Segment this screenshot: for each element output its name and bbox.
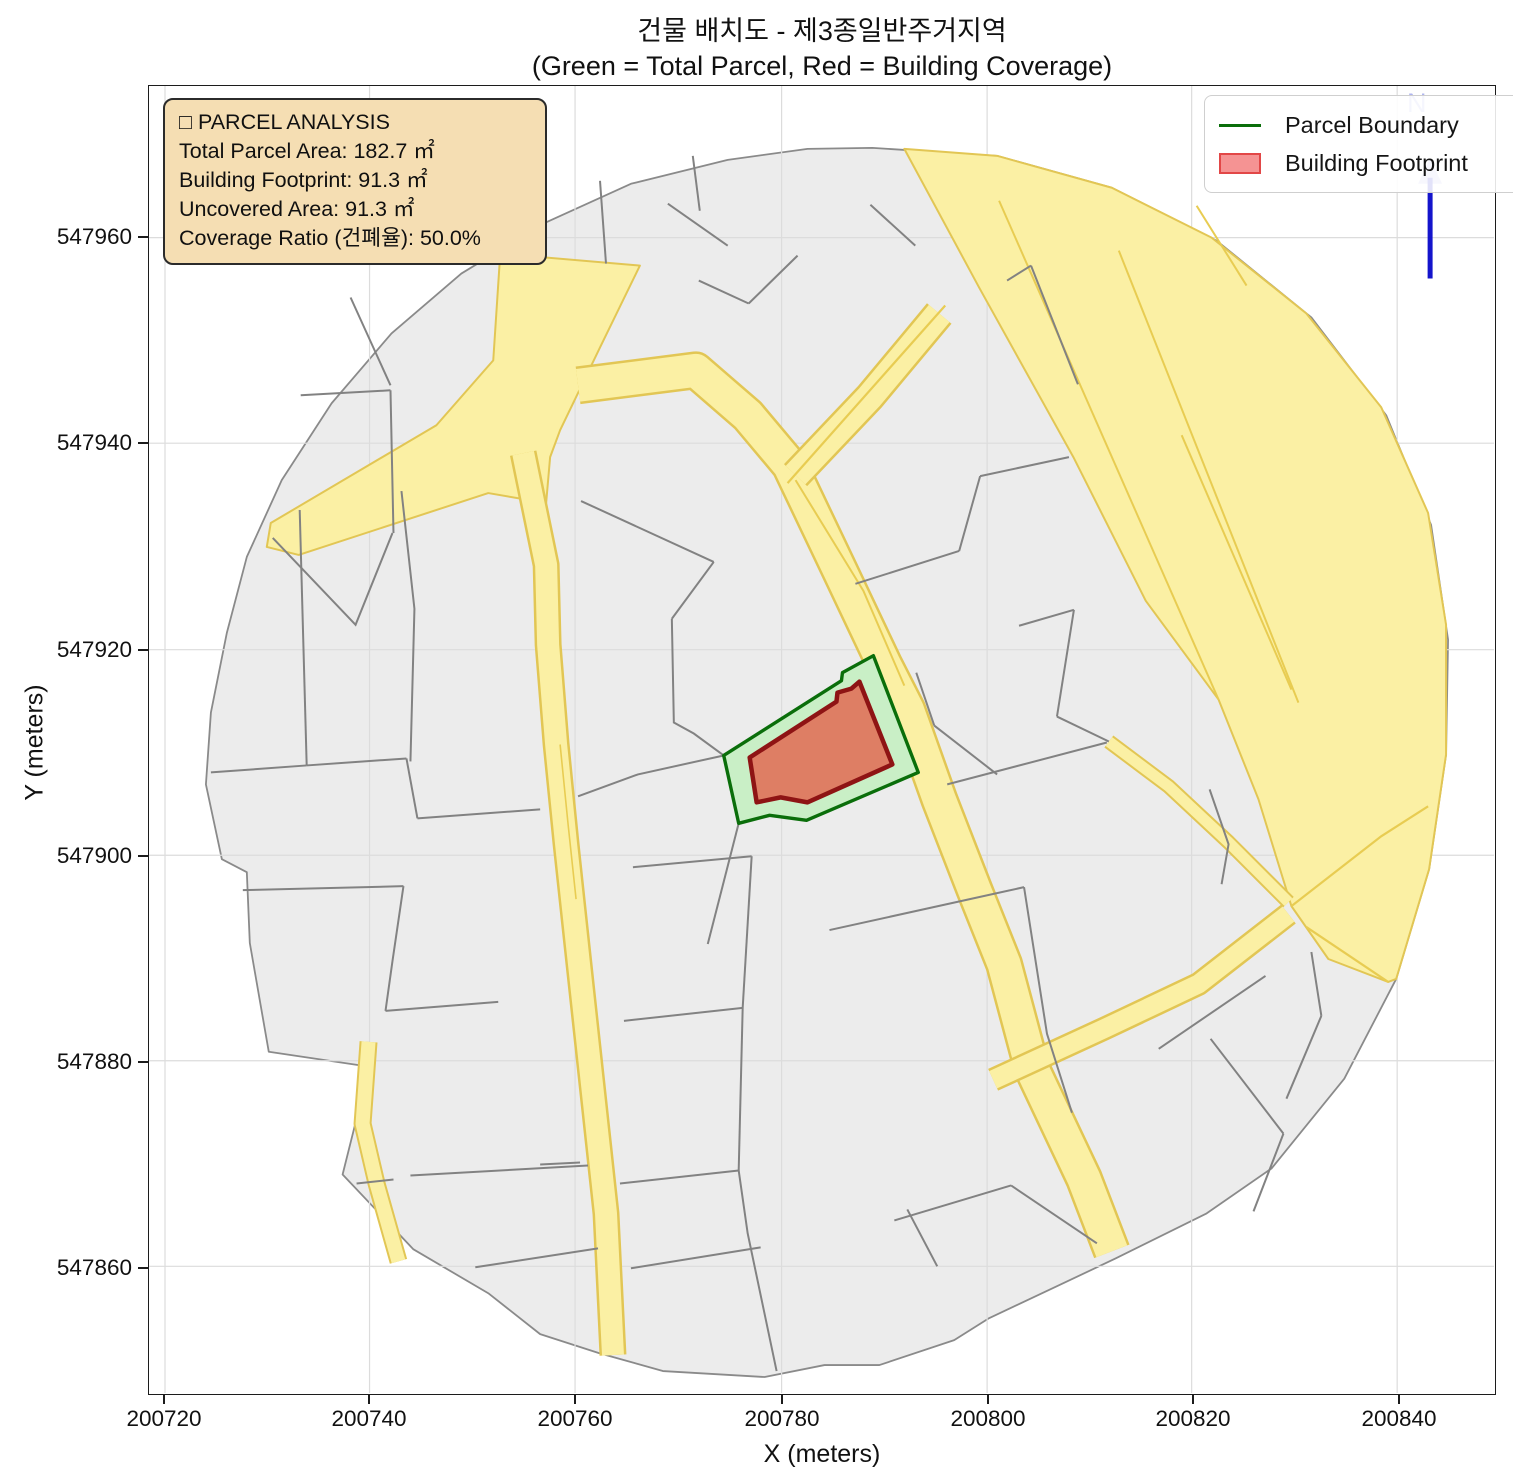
y-tick-mark [138,236,148,238]
x-tick-mark [1192,1394,1194,1404]
legend-label: Building Footprint [1285,150,1468,177]
building-footprint-patch-swatch [1219,153,1261,174]
x-tick-mark [1398,1394,1400,1404]
x-tick-label: 200820 [1123,1406,1263,1432]
legend: Parcel Boundary Building Footprint [1204,95,1513,193]
y-tick-mark [138,855,148,857]
parcel-analysis-box: □ PARCEL ANALYSIS Total Parcel Area: 182… [163,98,547,265]
y-tick-mark [138,649,148,651]
y-tick-mark [138,1061,148,1063]
legend-patch-swatch-wrap [1219,153,1277,174]
chart-title-line2: (Green = Total Parcel, Red = Building Co… [148,49,1496,84]
legend-item-parcel-boundary: Parcel Boundary [1219,106,1507,144]
total-parcel-area: Total Parcel Area: 182.7 ㎡ [179,137,531,166]
x-tick-label: 200720 [94,1406,234,1432]
y-tick-label: 547960 [22,224,132,250]
x-tick-label: 200740 [299,1406,439,1432]
legend-label: Parcel Boundary [1285,112,1459,139]
chart-title-line1: 건물 배치도 - 제3종일반주거지역 [148,14,1496,49]
x-tick-label: 200840 [1329,1406,1469,1432]
parcel-boundary-line-swatch [1219,124,1261,127]
x-tick-mark [781,1394,783,1404]
x-tick-mark [574,1394,576,1404]
y-axis-label: Y (meters) [21,363,50,1123]
building-footprint-area: Building Footprint: 91.3 ㎡ [179,166,531,195]
uncovered-area: Uncovered Area: 91.3 ㎡ [179,195,531,224]
map-canvas [149,86,1494,1393]
coverage-ratio: Coverage Ratio (건폐율): 50.0% [179,224,531,253]
x-tick-label: 200760 [505,1406,645,1432]
y-tick-label: 547860 [22,1255,132,1281]
x-tick-mark [987,1394,989,1404]
x-tick-mark [368,1394,370,1404]
x-tick-label: 200800 [918,1406,1058,1432]
y-tick-mark [138,1267,148,1269]
x-tick-label: 200780 [712,1406,852,1432]
legend-item-building-footprint: Building Footprint [1219,144,1507,182]
x-tick-mark [163,1394,165,1404]
x-axis-label: X (meters) [148,1440,1496,1469]
chart-title: 건물 배치도 - 제3종일반주거지역 (Green = Total Parcel… [148,14,1496,84]
parcel-analysis-header: □ PARCEL ANALYSIS [179,108,531,137]
figure: 건물 배치도 - 제3종일반주거지역 (Green = Total Parcel… [0,0,1513,1483]
plot-area [148,85,1496,1395]
y-tick-mark [138,442,148,444]
legend-line-swatch-wrap [1219,124,1277,127]
